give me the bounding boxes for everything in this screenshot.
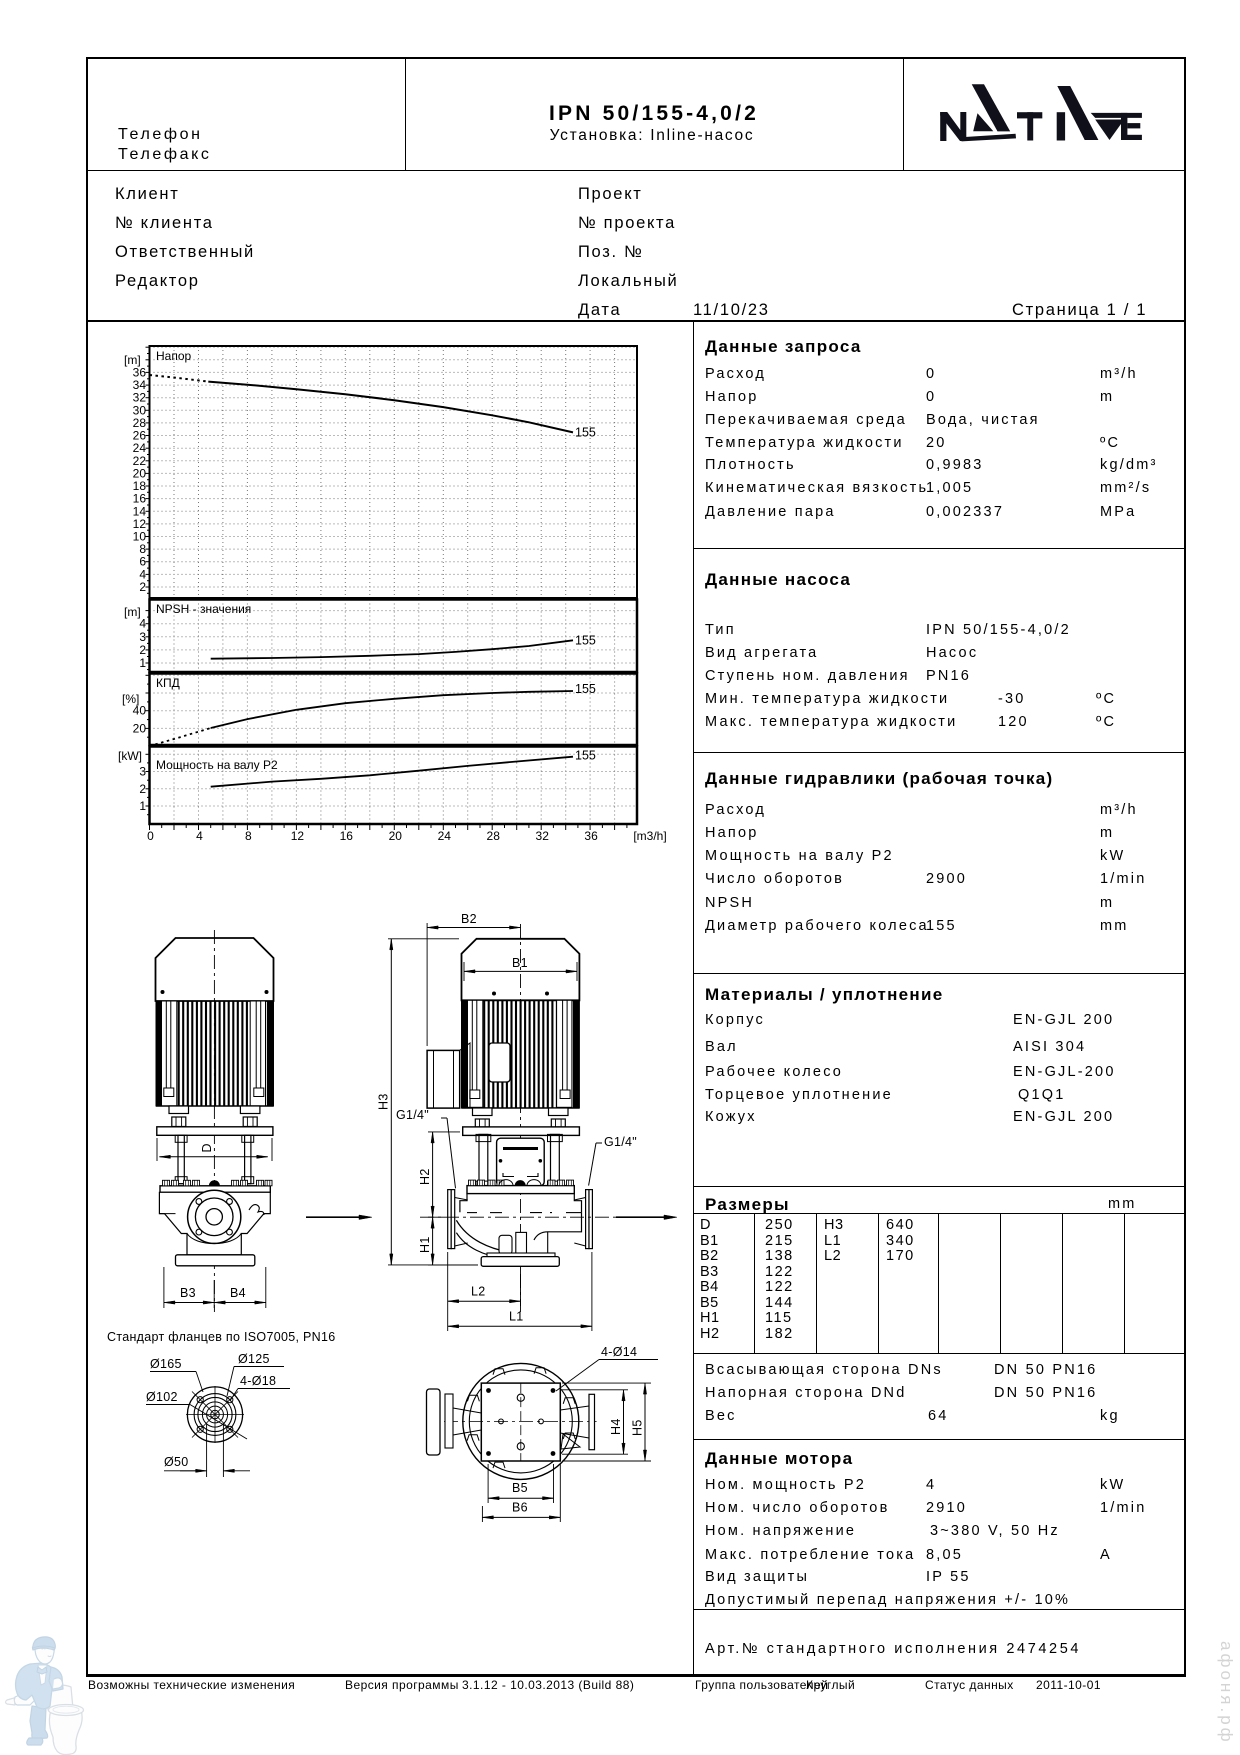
svg-text:H3: H3 <box>377 1093 391 1110</box>
svg-text:D: D <box>200 1143 214 1152</box>
svg-text:H2: H2 <box>418 1168 432 1185</box>
svg-text:B1: B1 <box>512 956 528 970</box>
svg-text:Ø50: Ø50 <box>164 1455 189 1469</box>
svg-text:H1: H1 <box>418 1236 432 1253</box>
svg-text:Ø102: Ø102 <box>146 1390 178 1404</box>
svg-text:L1: L1 <box>509 1310 524 1324</box>
svg-text:B6: B6 <box>512 1501 528 1515</box>
svg-text:B5: B5 <box>512 1481 528 1495</box>
svg-text:B3: B3 <box>180 1286 196 1300</box>
svg-text:Ø165: Ø165 <box>150 1357 182 1371</box>
svg-text:B2: B2 <box>461 912 477 926</box>
svg-text:H4: H4 <box>609 1418 623 1435</box>
svg-text:L2: L2 <box>471 1285 486 1299</box>
svg-text:G1/4": G1/4" <box>604 1135 637 1149</box>
svg-text:H5: H5 <box>631 1419 645 1436</box>
svg-text:Ø125: Ø125 <box>238 1352 270 1366</box>
svg-text:B4: B4 <box>230 1286 246 1300</box>
svg-text:4-Ø18: 4-Ø18 <box>240 1374 276 1388</box>
svg-text:Стандарт фланцев по ISO7005, P: Стандарт фланцев по ISO7005, PN16 <box>107 1330 335 1344</box>
svg-text:G1/4": G1/4" <box>396 1108 429 1122</box>
svg-text:4-Ø14: 4-Ø14 <box>601 1345 637 1359</box>
